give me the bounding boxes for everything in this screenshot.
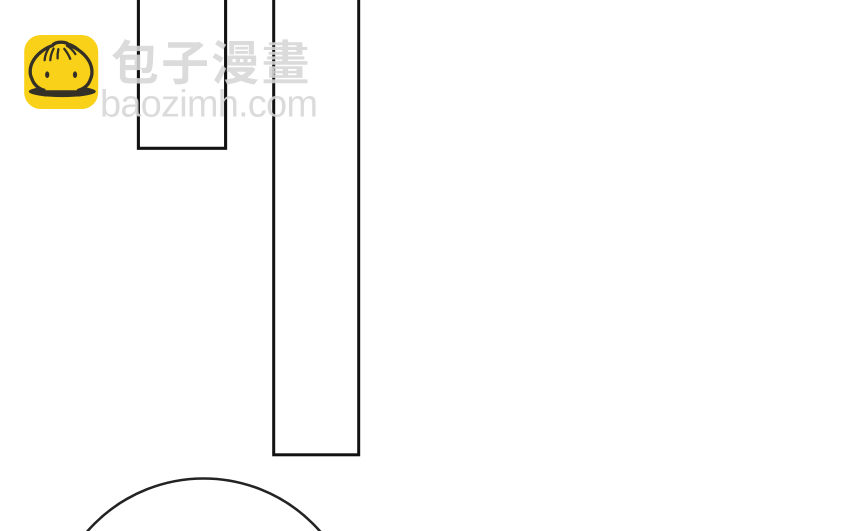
svg-text:baozimh.com: baozimh.com [100,84,317,126]
